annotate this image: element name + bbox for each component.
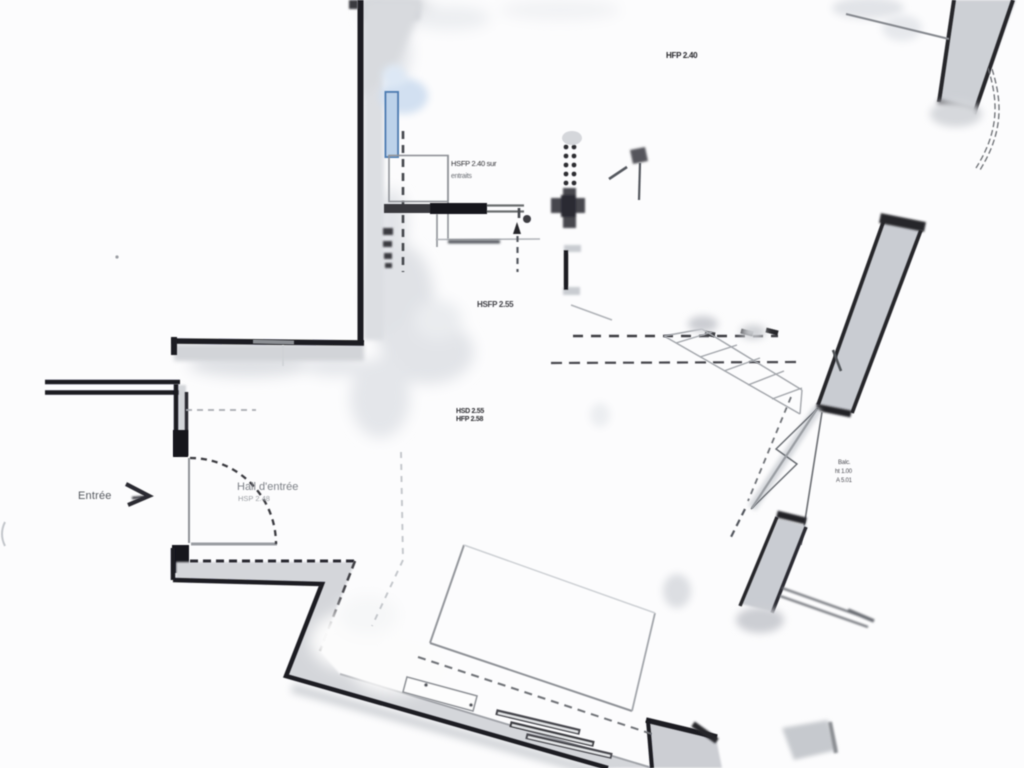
- svg-text:A 5.01: A 5.01: [836, 478, 853, 484]
- svg-text:Hall d'entrée: Hall d'entrée: [237, 481, 298, 493]
- svg-text:HSFP 2.55: HSFP 2.55: [477, 300, 514, 309]
- svg-text:HSFP 2.40 sur: HSFP 2.40 sur: [451, 159, 497, 168]
- svg-text:ht 1.00: ht 1.00: [835, 469, 853, 475]
- svg-text:entraits: entraits: [451, 173, 472, 180]
- svg-text:HSD 2.55: HSD 2.55: [456, 408, 484, 415]
- svg-text:HFP 2.58: HFP 2.58: [456, 416, 483, 423]
- svg-text:HSP 2.48: HSP 2.48: [238, 494, 270, 503]
- svg-text:Balc.: Balc.: [838, 460, 851, 466]
- svg-text:Entrée: Entrée: [78, 490, 112, 502]
- svg-text:HFP 2.40: HFP 2.40: [666, 51, 698, 60]
